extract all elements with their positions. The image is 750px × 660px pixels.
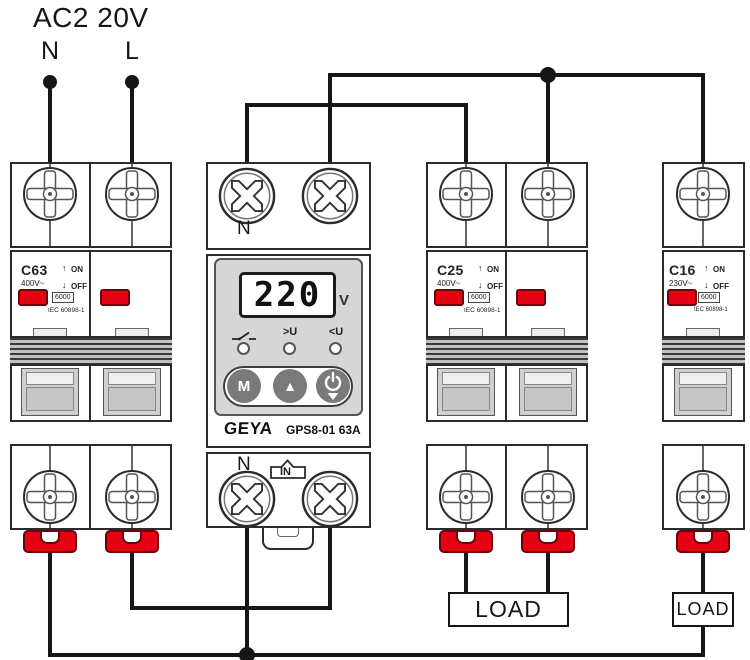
on-label: ON	[71, 265, 83, 274]
on-arrow-icon: ↑	[62, 264, 67, 273]
terminal-screw-icon	[22, 469, 78, 525]
terminal-cover	[521, 530, 575, 553]
voltage-unit-label: V	[339, 292, 349, 309]
voltage-display: 220	[239, 272, 336, 318]
terminal-screw-icon	[104, 469, 160, 525]
breaker-handle[interactable]	[100, 289, 130, 306]
standard-label: IEC 60898-1	[464, 307, 501, 314]
din-rail-slot	[10, 336, 172, 366]
latch	[21, 368, 79, 416]
junction-dot	[540, 67, 556, 83]
terminal-screw-icon	[218, 167, 276, 225]
breaking-capacity-label: 6000	[52, 292, 74, 303]
terminal-screw-icon	[520, 469, 576, 525]
terminal-screw-icon	[675, 469, 731, 525]
load-label: LOAD	[676, 599, 729, 620]
breaker-voltage-label: 400V~	[437, 279, 460, 288]
wire-segment	[701, 625, 705, 657]
off-arrow-icon: ↓	[478, 281, 483, 290]
relay-led	[237, 342, 250, 355]
terminal-screw-icon	[438, 166, 494, 222]
on-arrow-icon: ↑	[704, 264, 709, 273]
junction-dot	[239, 647, 255, 660]
main-breaker-c63: C63 400V~ ↑ ON ↓ OFF 6000 IEC 60898-1 1 …	[10, 162, 172, 553]
wire-segment	[130, 551, 134, 610]
breaker-model-label: C16	[669, 263, 696, 277]
terminal-cover	[439, 530, 493, 553]
on-label: ON	[487, 265, 499, 274]
over-voltage-label: >U	[280, 326, 300, 338]
breaker-model-label: C63	[21, 263, 48, 277]
wire-segment	[464, 551, 468, 594]
terminal-screw-icon	[301, 167, 359, 225]
brand-logo: GEYA	[223, 419, 273, 439]
latch	[437, 368, 495, 416]
terminal-screw-icon	[520, 166, 576, 222]
terminal-screw-icon	[301, 470, 359, 528]
load-label: LOAD	[475, 596, 542, 623]
wiring-diagram: AC2 20V N L	[0, 0, 750, 660]
wire-segment	[247, 103, 468, 107]
on-arrow-icon: ↑	[478, 264, 483, 273]
under-voltage-label: <U	[326, 326, 346, 338]
wire-segment	[701, 73, 705, 165]
terminal-screw-icon	[218, 470, 276, 528]
load-breaker-c16: C16 230V~ ↑ ON ↓ OFF 6000 IEC 60898-1 1 …	[662, 162, 745, 553]
relay-contact-icon	[231, 329, 257, 342]
din-rail-slot	[662, 336, 745, 366]
latch	[674, 368, 732, 416]
wire-segment	[132, 606, 332, 610]
din-clip	[262, 528, 314, 550]
off-label: OFF	[713, 282, 729, 291]
voltage-value: 220	[254, 275, 321, 315]
latch	[519, 368, 577, 416]
off-label: OFF	[71, 282, 87, 291]
neutral-terminal-label: N	[237, 218, 251, 240]
wire-segment	[464, 103, 468, 165]
wire-segment	[48, 653, 705, 657]
up-arrow-icon: ▲	[283, 378, 297, 394]
breaker-handle[interactable]	[516, 289, 546, 306]
off-label: OFF	[487, 282, 503, 291]
supply-terminal-dot	[43, 75, 57, 89]
wire-segment	[245, 103, 249, 165]
over-voltage-led	[283, 342, 296, 355]
up-button[interactable]: ▲	[273, 369, 307, 403]
mode-button-label: M	[238, 378, 251, 395]
terminal-screw-icon	[22, 166, 78, 222]
wire-segment	[546, 551, 550, 594]
standard-label: IEC 60898-1	[48, 307, 85, 314]
standard-label: IEC 60898-1	[694, 307, 728, 313]
breaker-handle[interactable]	[18, 289, 48, 306]
breaker-model-label: C25	[437, 263, 464, 277]
off-arrow-icon: ↓	[62, 281, 67, 290]
off-arrow-icon: ↓	[704, 281, 709, 290]
supply-terminal-dot	[125, 75, 139, 89]
breaking-capacity-label: 6000	[468, 292, 490, 303]
wire-segment	[48, 84, 52, 164]
breaker-voltage-label: 400V~	[21, 279, 44, 288]
wire-segment	[328, 73, 332, 165]
wire-segment	[130, 84, 134, 164]
din-rail-slot	[426, 336, 588, 366]
latch	[103, 368, 161, 416]
wire-segment	[701, 551, 705, 594]
on-label: ON	[713, 265, 725, 274]
terminal-cover	[23, 530, 77, 553]
under-voltage-led	[329, 342, 342, 355]
supply-voltage-label: AC2 20V	[33, 2, 149, 34]
load-breaker-c25: C25 400V~ ↑ ON ↓ OFF 6000 IEC 60898-1 1 …	[426, 162, 588, 553]
supply-neutral-label: N	[41, 37, 59, 66]
breaker-handle[interactable]	[667, 289, 697, 306]
breaker-voltage-label: 230V~	[669, 279, 692, 288]
voltage-protector-gps8: N 220 V >U <U M ▲ GEYA GPS	[206, 162, 371, 552]
power-icon	[316, 369, 350, 403]
terminal-screw-icon	[675, 166, 731, 222]
svg-text:IN: IN	[280, 466, 291, 478]
terminal-screw-icon	[104, 166, 160, 222]
terminal-cover	[105, 530, 159, 553]
wire-segment	[546, 73, 550, 165]
supply-line-label: L	[125, 37, 139, 66]
power-button[interactable]	[316, 369, 350, 403]
wire-segment	[48, 551, 52, 657]
breaking-capacity-label: 6000	[698, 292, 720, 303]
wire-segment	[330, 73, 705, 77]
breaker-handle[interactable]	[434, 289, 464, 306]
terminal-screw-icon	[438, 469, 494, 525]
terminal-cover	[676, 530, 730, 553]
load-box-1: LOAD	[448, 592, 569, 627]
load-box-2: LOAD	[672, 592, 734, 627]
protector-model-label: GPS8-01 63A	[286, 423, 361, 437]
mode-button[interactable]: M	[227, 369, 261, 403]
